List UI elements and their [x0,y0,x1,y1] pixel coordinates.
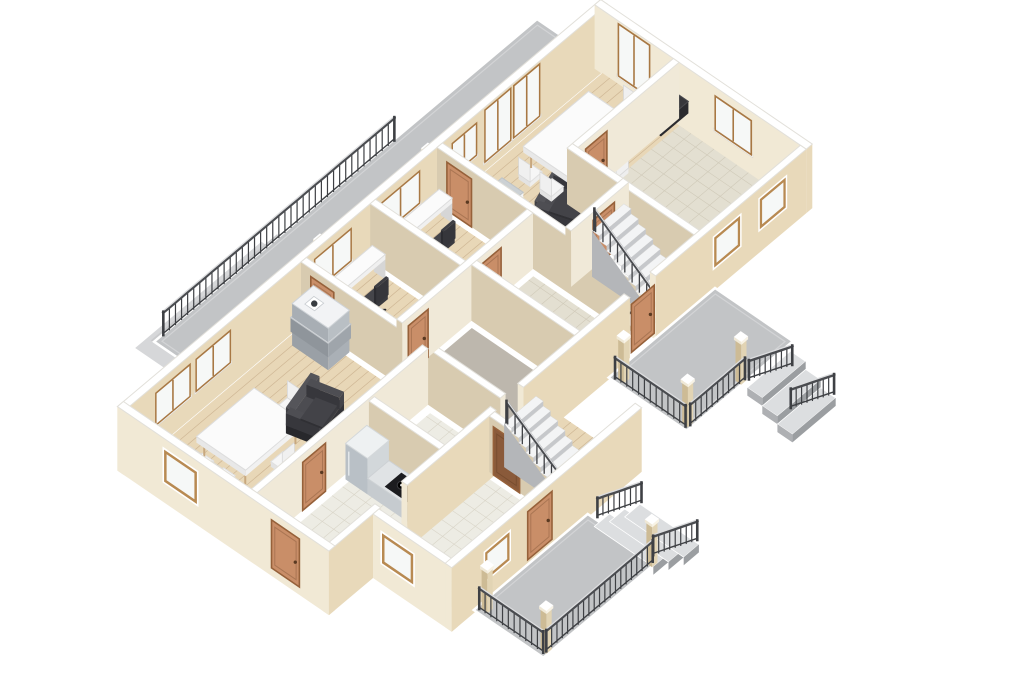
floor-plan-3d-render [0,0,1024,696]
floor-plan-stage [0,0,1024,696]
right-porch-post-1 [617,330,631,384]
bottom-porch-post-1 [480,560,494,614]
